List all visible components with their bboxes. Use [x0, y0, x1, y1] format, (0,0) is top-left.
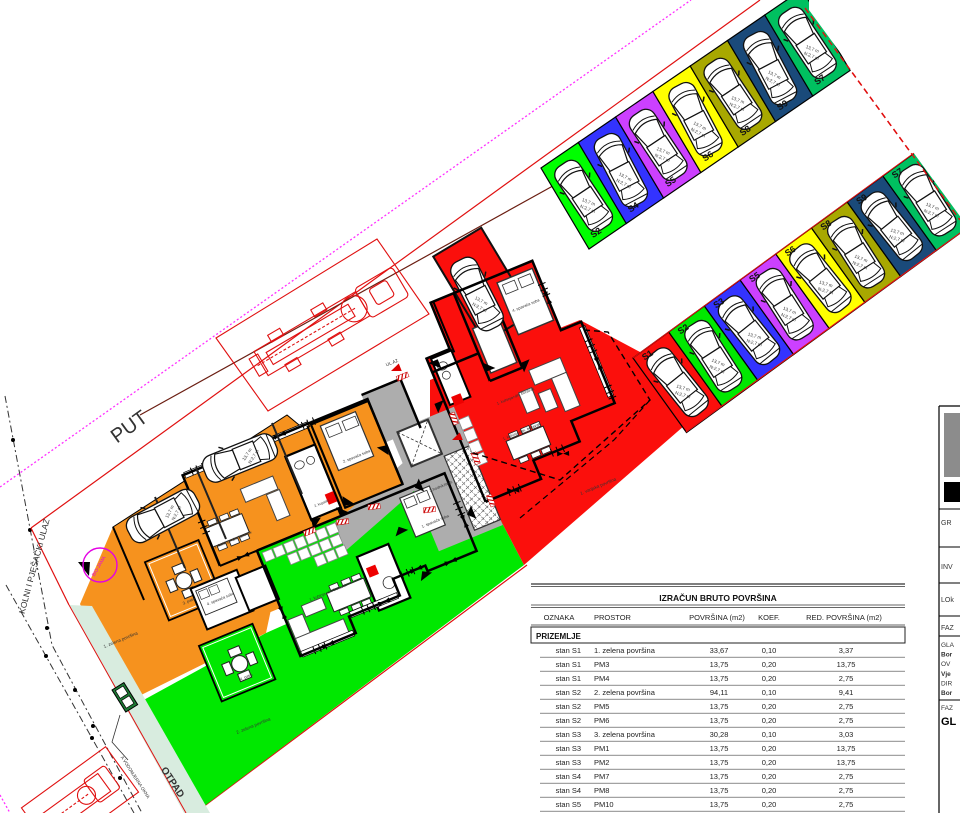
- svg-text:Bor: Bor: [941, 652, 953, 659]
- svg-text:9,41: 9,41: [839, 688, 854, 697]
- svg-text:PROSTOR: PROSTOR: [594, 613, 632, 622]
- svg-text:2,75: 2,75: [839, 786, 854, 795]
- svg-text:3,03: 3,03: [839, 730, 854, 739]
- svg-text:13,75: 13,75: [710, 702, 729, 711]
- svg-text:0,10: 0,10: [762, 688, 777, 697]
- svg-text:3,37: 3,37: [839, 646, 854, 655]
- svg-text:PM6: PM6: [594, 716, 609, 725]
- svg-text:94,11: 94,11: [710, 688, 728, 697]
- svg-text:13,75: 13,75: [710, 758, 729, 767]
- svg-text:2,75: 2,75: [839, 674, 854, 683]
- svg-text:POVRŠINA (m2): POVRŠINA (m2): [689, 613, 745, 622]
- svg-text:13,75: 13,75: [837, 744, 856, 753]
- svg-text:GLA: GLA: [941, 642, 955, 649]
- svg-text:GR: GR: [941, 520, 952, 527]
- svg-text:PM1: PM1: [594, 744, 609, 753]
- svg-text:PM8: PM8: [594, 786, 609, 795]
- svg-text:0,20: 0,20: [762, 800, 777, 809]
- svg-text:PM2: PM2: [594, 758, 609, 767]
- svg-text:30,28: 30,28: [710, 730, 729, 739]
- svg-text:stan S2: stan S2: [556, 702, 581, 711]
- svg-text:stan S1: stan S1: [556, 646, 581, 655]
- svg-text:FAZ: FAZ: [941, 705, 953, 712]
- svg-text:stan S4: stan S4: [556, 786, 581, 795]
- svg-text:13,75: 13,75: [710, 786, 729, 795]
- svg-text:0,20: 0,20: [762, 716, 777, 725]
- svg-text:GL: GL: [941, 716, 957, 728]
- svg-text:PM5: PM5: [594, 702, 609, 711]
- svg-text:13,75: 13,75: [710, 800, 729, 809]
- svg-text:2,75: 2,75: [839, 716, 854, 725]
- svg-text:13,75: 13,75: [710, 660, 729, 669]
- svg-text:FAZ: FAZ: [941, 625, 955, 632]
- svg-text:2,75: 2,75: [839, 800, 854, 809]
- svg-text:13,75: 13,75: [837, 660, 856, 669]
- svg-text:0,20: 0,20: [762, 744, 777, 753]
- svg-text:stan S3: stan S3: [556, 730, 581, 739]
- svg-text:DIR: DIR: [941, 680, 953, 687]
- svg-text:33,67: 33,67: [710, 646, 729, 655]
- svg-text:13,75: 13,75: [710, 744, 729, 753]
- svg-text:LOk: LOk: [941, 597, 954, 604]
- svg-text:stan S1: stan S1: [556, 660, 581, 669]
- svg-text:PM7: PM7: [594, 772, 609, 781]
- svg-text:PM4: PM4: [594, 674, 609, 683]
- svg-text:13,75: 13,75: [710, 772, 729, 781]
- svg-text:3. zelena površina: 3. zelena površina: [594, 730, 656, 739]
- svg-text:0,20: 0,20: [762, 702, 777, 711]
- svg-text:stan S5: stan S5: [556, 800, 581, 809]
- svg-text:KOEF.: KOEF.: [758, 613, 780, 622]
- svg-text:stan S1: stan S1: [556, 674, 581, 683]
- svg-text:stan S3: stan S3: [556, 758, 581, 767]
- svg-text:0,20: 0,20: [762, 758, 777, 767]
- svg-text:PM10: PM10: [594, 800, 614, 809]
- svg-text:PM3: PM3: [594, 660, 609, 669]
- svg-text:0,10: 0,10: [762, 646, 777, 655]
- svg-text:13,75: 13,75: [837, 758, 856, 767]
- svg-text:stan S4: stan S4: [556, 772, 581, 781]
- svg-text:Bor: Bor: [941, 690, 953, 697]
- svg-text:13,75: 13,75: [710, 674, 729, 683]
- svg-text:0,20: 0,20: [762, 660, 777, 669]
- svg-text:2,75: 2,75: [839, 702, 854, 711]
- svg-text:INV: INV: [941, 564, 953, 571]
- svg-text:stan S2: stan S2: [556, 688, 581, 697]
- svg-text:0,20: 0,20: [762, 772, 777, 781]
- svg-text:stan S3: stan S3: [556, 744, 581, 753]
- svg-text:IZRAČUN BRUTO POVRŠINA: IZRAČUN BRUTO POVRŠINA: [659, 592, 776, 603]
- svg-text:0,20: 0,20: [762, 674, 777, 683]
- svg-text:13,75: 13,75: [710, 716, 729, 725]
- svg-text:PRIZEMLJE: PRIZEMLJE: [536, 632, 582, 641]
- svg-text:1. zelena površina: 1. zelena površina: [594, 646, 656, 655]
- svg-text:2. zelena površina: 2. zelena površina: [594, 688, 656, 697]
- svg-text:0,10: 0,10: [762, 730, 777, 739]
- svg-text:0,20: 0,20: [762, 786, 777, 795]
- svg-text:stan S2: stan S2: [556, 716, 581, 725]
- svg-text:2,75: 2,75: [839, 772, 854, 781]
- svg-text:RED. POVRŠINA (m2): RED. POVRŠINA (m2): [806, 613, 882, 622]
- svg-text:OZNAKA: OZNAKA: [544, 613, 575, 622]
- svg-text:OV: OV: [941, 661, 951, 668]
- svg-text:Vje: Vje: [941, 671, 951, 678]
